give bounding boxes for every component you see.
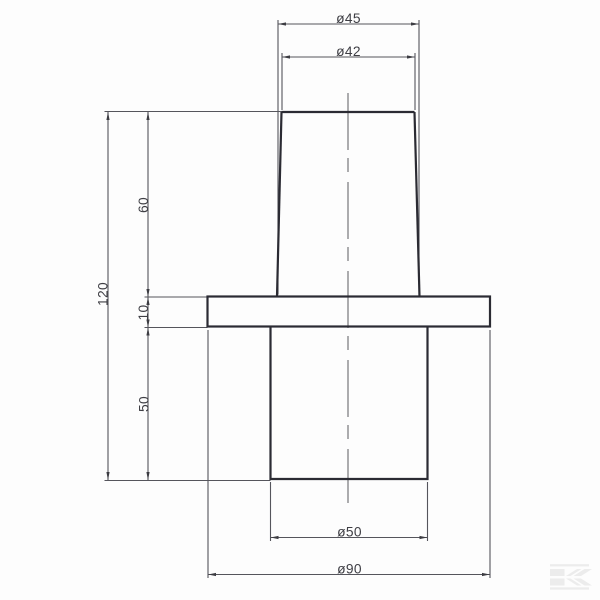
svg-text:50: 50 bbox=[137, 396, 152, 412]
svg-text:ø90: ø90 bbox=[337, 561, 362, 576]
svg-text:ø45: ø45 bbox=[336, 11, 361, 26]
svg-text:10: 10 bbox=[136, 305, 151, 321]
svg-text:120: 120 bbox=[96, 282, 111, 306]
svg-text:ø42: ø42 bbox=[336, 44, 361, 59]
svg-text:60: 60 bbox=[136, 197, 151, 213]
svg-text:ø50: ø50 bbox=[337, 524, 362, 539]
